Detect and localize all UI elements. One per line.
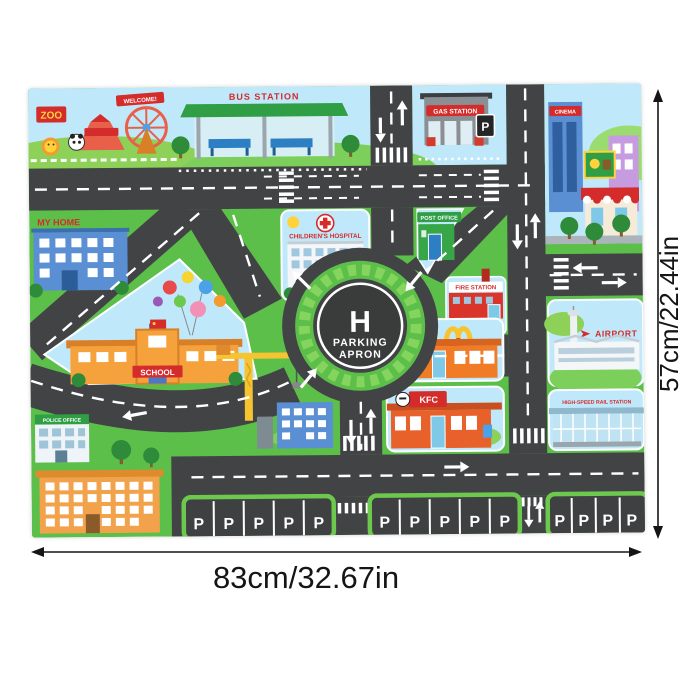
helipad-label-line2: APRON bbox=[339, 349, 382, 361]
red-cross-icon bbox=[317, 215, 334, 232]
police-office-label: POLICE OFFICE bbox=[43, 418, 82, 424]
parking-stall-letter: P bbox=[439, 514, 450, 531]
product-photo: { "product": { "dimensions": { "width_la… bbox=[0, 0, 700, 700]
school-label: SCHOOL bbox=[140, 368, 174, 377]
roundabout: H PARKING APRON bbox=[281, 247, 438, 404]
kfc-panel: KFC bbox=[387, 387, 505, 452]
post-office-label: POST OFFICE bbox=[421, 216, 459, 222]
width-dimension-label: 83cm/32.67in bbox=[213, 560, 399, 595]
airport-terminal bbox=[554, 341, 639, 370]
parking-stall-letter: P bbox=[223, 516, 234, 533]
kfc-label: KFC bbox=[419, 395, 438, 405]
sun-icon bbox=[287, 216, 299, 228]
playmat-photo: ZOO WELCOME! BUS STATION bbox=[28, 83, 645, 537]
zoo-fence bbox=[31, 159, 179, 160]
height-dimension-arrow: 57cm/22.44in bbox=[648, 88, 694, 540]
trash-bin bbox=[483, 425, 492, 438]
parking-stall-letter: P bbox=[554, 513, 565, 530]
fire-station-label: FIRE STATION bbox=[455, 285, 496, 291]
helipad-letter: H bbox=[349, 306, 371, 339]
parking-lot-right: P P P P bbox=[548, 493, 645, 536]
lion-icon bbox=[41, 137, 59, 155]
playmat-illustration: ZOO WELCOME! BUS STATION bbox=[28, 83, 645, 537]
parking-stall-letter: P bbox=[578, 513, 589, 530]
gas-station-label: GAS STATION bbox=[433, 108, 477, 115]
parking-stall-letter: P bbox=[313, 515, 324, 532]
rail-station-panel: HIGH-SPEED RAIL STATION bbox=[549, 389, 645, 450]
police-office: POLICE OFFICE bbox=[35, 414, 89, 462]
rail-station-label: HIGH-SPEED RAIL STATION bbox=[562, 399, 631, 406]
hospital-label: CHILDREN'S HOSPITAL bbox=[289, 233, 362, 241]
my-home-label: MY HOME bbox=[37, 217, 80, 227]
zoo-sign-label: ZOO bbox=[40, 110, 62, 121]
parking-lot-left: P P P P P bbox=[184, 496, 334, 538]
parking-stall-letter: P bbox=[283, 515, 294, 532]
cinema-label: CINEMA bbox=[555, 109, 576, 115]
airport-panel: AIRPORT bbox=[544, 299, 644, 396]
helipad-label-line1: PARKING bbox=[333, 337, 388, 349]
parking-stall-letter: P bbox=[253, 516, 264, 533]
parking-stall-letter: P bbox=[469, 514, 480, 531]
panda-icon bbox=[68, 134, 84, 151]
height-dimension-label: 57cm/22.44in bbox=[654, 236, 684, 392]
airport-label: AIRPORT bbox=[595, 328, 638, 338]
parking-stall-letter: P bbox=[409, 514, 420, 531]
bus-station-label: BUS STATION bbox=[229, 91, 300, 102]
parking-sign-letter: P bbox=[481, 120, 489, 134]
parking-stall-letter: P bbox=[602, 513, 613, 530]
parking-stall-letter: P bbox=[626, 512, 637, 529]
parking-stall-letter: P bbox=[379, 515, 390, 532]
parking-stall-letter: P bbox=[499, 513, 510, 530]
width-dimension-arrow: 83cm/32.67in bbox=[30, 540, 643, 598]
parking-stall-letter: P bbox=[193, 516, 204, 533]
parking-lot-middle: P P P P P bbox=[370, 494, 520, 537]
